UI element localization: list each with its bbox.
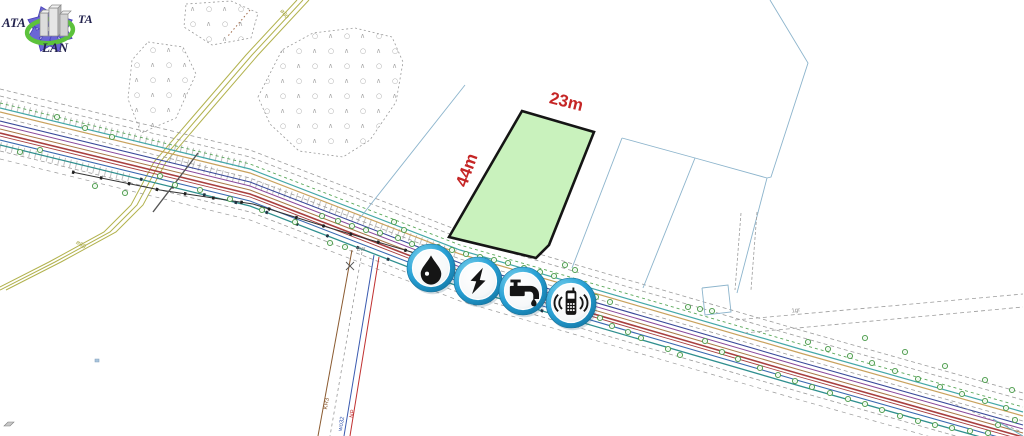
veg-symbol: ○	[344, 32, 350, 40]
embankment-hachure	[0, 104, 250, 166]
veg-symbol: ∧	[360, 92, 365, 100]
tree-symbol	[775, 372, 780, 377]
veg-symbol: ○	[344, 62, 350, 70]
veg-symbol: ○	[264, 137, 270, 145]
layer-veg: ∧○∧○○∧○∧∧○∧○○∧○∧∧○∧○○∧○∧∧○∧○∧○∧○∧○∧○∧○∧∧…	[128, 1, 403, 157]
veg-symbol: ○	[206, 5, 212, 13]
tree-symbol	[825, 346, 830, 351]
tree-symbol	[709, 308, 714, 313]
plot-depth-label: 44m	[452, 151, 481, 189]
veg-symbol: ∧	[360, 122, 365, 130]
veg-symbol: ∧	[264, 62, 269, 70]
fence-line	[72, 172, 425, 256]
utility-corridor-line	[344, 255, 374, 436]
veg-symbol: ○	[376, 62, 382, 70]
tree-symbol	[915, 418, 920, 423]
veg-symbol: ○	[296, 137, 302, 145]
layer-parcel: 23m44m	[449, 88, 594, 258]
tree-symbol	[892, 368, 897, 373]
veg-symbol: ∧	[344, 47, 349, 55]
veg-symbol: ∧	[328, 32, 333, 40]
veg-symbol: ○	[254, 20, 260, 28]
veg-symbol: ○	[312, 92, 318, 100]
logo-text-bottom: LAN	[41, 40, 69, 55]
veg-symbol: ○	[150, 106, 156, 114]
veg-symbol: ∧	[280, 77, 285, 85]
veg-symbol: ∧	[328, 62, 333, 70]
tree-symbol	[702, 338, 707, 343]
map-label: 1gr	[791, 307, 800, 314]
veg-symbol: ○	[328, 137, 334, 145]
fence-posts	[72, 172, 425, 256]
logo-text-left: ATA	[1, 15, 26, 30]
veg-symbol: ∧	[344, 137, 349, 145]
tree-symbol	[157, 173, 162, 178]
utility-corridor-line	[350, 257, 379, 436]
tree-symbol	[982, 377, 987, 382]
veg-symbol: ∧	[206, 20, 211, 28]
dashed-boundary	[735, 294, 1023, 320]
veg-symbol: ∧	[166, 46, 171, 54]
dashed-boundary	[950, 402, 1022, 432]
tree-symbol	[897, 413, 902, 418]
veg-symbol: ∧	[166, 106, 171, 114]
map-label: DW	[357, 247, 366, 253]
tree-symbol	[597, 315, 602, 320]
veg-symbol: ∧	[134, 76, 139, 84]
tree-symbol	[809, 384, 814, 389]
veg-symbol: ○	[360, 77, 366, 85]
layer-badges	[407, 244, 598, 330]
tree-symbol	[827, 390, 832, 395]
tree-symbol	[792, 378, 797, 383]
tree-symbol	[879, 407, 884, 412]
tree-symbol	[1009, 387, 1014, 392]
veg-symbol: ∧	[328, 92, 333, 100]
veg-symbol: ∧	[376, 137, 381, 145]
tree-symbol	[335, 218, 340, 223]
tree-symbol	[685, 304, 690, 309]
dashed-boundary	[751, 212, 757, 290]
veg-symbol: ∧	[296, 32, 301, 40]
veg-symbol: ∧	[264, 92, 269, 100]
tree-symbol	[697, 306, 702, 311]
veg-symbol: ○	[222, 20, 228, 28]
tree-symbol	[327, 240, 332, 245]
veg-symbol: ○	[296, 47, 302, 55]
veg-symbol: ○	[312, 32, 318, 40]
veg-symbol: ○	[166, 91, 172, 99]
tree-symbol	[862, 401, 867, 406]
tree-symbol	[959, 391, 964, 396]
veg-symbol: ○	[280, 92, 286, 100]
veg-symbol: ∧	[280, 47, 285, 55]
tree-symbol	[395, 235, 400, 240]
veg-symbol: ∧	[392, 32, 397, 40]
veg-symbol: ∧	[312, 47, 317, 55]
tree-symbol	[949, 425, 954, 430]
tree-symbol	[625, 329, 630, 334]
tree-symbol	[735, 356, 740, 361]
veg-symbol: ○	[238, 35, 244, 43]
veg-symbol: ∧	[344, 107, 349, 115]
tree-symbol	[902, 349, 907, 354]
tree-symbol	[847, 353, 852, 358]
veg-symbol: ∧	[376, 47, 381, 55]
tree-symbol	[862, 335, 867, 340]
tree-symbol	[409, 241, 414, 246]
veg-symbol: ∧	[312, 137, 317, 145]
veg-symbol: ∧	[312, 77, 317, 85]
tree-symbol	[391, 219, 396, 224]
tree-symbol	[449, 247, 454, 252]
veg-symbol: ∧	[222, 35, 227, 43]
veg-symbol: ○	[360, 47, 366, 55]
map-mark	[95, 359, 99, 362]
veg-symbol: ∧	[150, 121, 155, 129]
parcel-boundary	[767, 0, 808, 178]
veg-symbol: ∧	[134, 46, 139, 54]
vegetation-area	[128, 42, 196, 133]
tree-symbol	[463, 251, 468, 256]
tree-symbol	[932, 422, 937, 427]
veg-symbol: ○	[182, 76, 188, 84]
parcel-boundary	[737, 178, 767, 293]
veg-symbol: ○	[182, 106, 188, 114]
veg-symbol: ○	[312, 122, 318, 130]
veg-symbol: ○	[190, 20, 196, 28]
veg-symbol: ∧	[182, 91, 187, 99]
cadastral-map: ∧○∧○○∧○∧∧○∧○○∧○∧∧○∧○○∧○∧∧○∧○∧○∧○∧○∧○∧○∧∧…	[0, 0, 1024, 436]
tree-symbol	[342, 244, 347, 249]
veg-symbol: ○	[280, 122, 286, 130]
veg-symbol: ∧	[222, 5, 227, 13]
tree-symbol	[377, 230, 382, 235]
tree-symbol	[638, 335, 643, 340]
veg-symbol: ○	[166, 121, 172, 129]
tree-symbol	[845, 396, 850, 401]
logo-text-right: TA	[78, 12, 93, 26]
veg-symbol: ∧	[392, 122, 397, 130]
veg-symbol: ∧	[376, 77, 381, 85]
parcel-boundary	[643, 158, 695, 288]
veg-symbol: ∧	[392, 92, 397, 100]
tree-symbol	[259, 207, 264, 212]
tree-symbol	[942, 363, 947, 368]
map-label: KR3	[323, 397, 331, 410]
tree-symbol	[995, 422, 1000, 427]
veg-symbol: ○	[392, 137, 398, 145]
tree-symbol	[37, 147, 42, 152]
tree-symbol	[937, 384, 942, 389]
veg-symbol: ○	[238, 5, 244, 13]
tree-symbol	[172, 182, 177, 187]
veg-symbol: ∧	[254, 5, 259, 13]
tree-symbol	[757, 365, 762, 370]
veg-symbol: ○	[344, 122, 350, 130]
veg-symbol: ∧	[182, 61, 187, 69]
veg-symbol: ∧	[166, 76, 171, 84]
veg-symbol: ∧	[376, 107, 381, 115]
tree-symbol	[292, 219, 297, 224]
tree-symbol	[92, 183, 97, 188]
veg-symbol: ○	[296, 107, 302, 115]
veg-symbol: ○	[376, 92, 382, 100]
tree-symbol	[401, 227, 406, 232]
tree-symbol	[109, 134, 114, 139]
tree-symbol	[985, 430, 990, 435]
veg-symbol: ∧	[264, 122, 269, 130]
tree-symbol	[719, 349, 724, 354]
tree-symbol	[562, 262, 567, 267]
map-label: NP	[349, 409, 356, 418]
veg-symbol: ∧	[296, 62, 301, 70]
telecom-badge	[546, 278, 598, 330]
veg-symbol: ∧	[280, 137, 285, 145]
tree-symbol	[915, 376, 920, 381]
tree-symbol	[677, 352, 682, 357]
tree-symbol	[1003, 405, 1008, 410]
veg-symbol: ∧	[312, 107, 317, 115]
veg-symbol: ○	[134, 91, 140, 99]
tree-symbol	[505, 260, 510, 265]
veg-symbol: ∧	[360, 32, 365, 40]
veg-symbol: ○	[182, 46, 188, 54]
veg-symbol: ∧	[328, 122, 333, 130]
map-canvas: ∧○∧○○∧○∧∧○∧○○∧○∧∧○∧○○∧○∧∧○∧○∧○∧○∧○∧○∧○∧∧…	[0, 0, 1024, 436]
veg-symbol: ○	[280, 32, 286, 40]
veg-symbol: ○	[392, 107, 398, 115]
map-line	[702, 285, 731, 315]
veg-symbol: ○	[296, 77, 302, 85]
dashed-boundary	[744, 307, 1023, 333]
tree-symbol	[227, 196, 232, 201]
tree-symbol	[122, 190, 127, 195]
veg-symbol: ∧	[134, 106, 139, 114]
plot-width-label: 23m	[548, 88, 586, 115]
agency-logo: ATA TA LAN	[0, 0, 112, 62]
tree-symbol	[967, 428, 972, 433]
dashed-boundary	[228, 10, 250, 36]
veg-symbol: ∧	[190, 35, 195, 43]
veg-symbol: ○	[264, 107, 270, 115]
veg-symbol: ○	[360, 107, 366, 115]
veg-symbol: ○	[344, 92, 350, 100]
veg-symbol: ∧	[344, 77, 349, 85]
veg-symbol: ∧	[190, 5, 195, 13]
tree-symbol	[982, 398, 987, 403]
veg-symbol: ∧	[296, 122, 301, 130]
veg-symbol: ○	[280, 62, 286, 70]
veg-symbol: ○	[376, 32, 382, 40]
veg-symbol: ○	[166, 61, 172, 69]
veg-symbol: ○	[206, 35, 212, 43]
tree-symbol	[805, 339, 810, 344]
veg-symbol: ○	[376, 122, 382, 130]
veg-symbol: ○	[392, 77, 398, 85]
tree-symbol	[551, 273, 556, 278]
veg-symbol: ○	[328, 47, 334, 55]
veg-symbol: ○	[134, 61, 140, 69]
veg-symbol: ∧	[150, 91, 155, 99]
tree-symbol	[197, 187, 202, 192]
map-mark	[4, 422, 14, 426]
tree-symbol	[607, 299, 612, 304]
tree-symbol	[363, 227, 368, 232]
tree-symbol	[319, 213, 324, 218]
veg-symbol: ○	[360, 137, 366, 145]
veg-symbol: ∧	[392, 62, 397, 70]
tree-symbol	[17, 149, 22, 154]
tree-symbol	[349, 223, 354, 228]
veg-symbol: ○	[328, 77, 334, 85]
tree-symbol	[54, 114, 59, 119]
tree-symbol	[572, 267, 577, 272]
veg-symbol: ○	[312, 62, 318, 70]
tree-symbol	[869, 360, 874, 365]
tree-symbol	[609, 323, 614, 328]
tree-symbol	[1012, 417, 1017, 422]
veg-symbol: ∧	[280, 107, 285, 115]
parcel-boundary	[622, 138, 767, 178]
veg-symbol: ○	[150, 76, 156, 84]
veg-symbol: ○	[150, 46, 156, 54]
tree-symbol	[665, 346, 670, 351]
veg-symbol: ○	[328, 107, 334, 115]
dashed-boundary	[735, 213, 741, 290]
veg-symbol: ∧	[360, 62, 365, 70]
veg-symbol: ∧	[150, 61, 155, 69]
veg-symbol: ∧	[296, 92, 301, 100]
logo-buildings-icon	[40, 5, 71, 36]
parcel-boundary	[360, 85, 465, 218]
veg-symbol: ○	[264, 77, 270, 85]
veg-symbol: ∧	[238, 20, 243, 28]
tree-symbol	[82, 125, 87, 130]
